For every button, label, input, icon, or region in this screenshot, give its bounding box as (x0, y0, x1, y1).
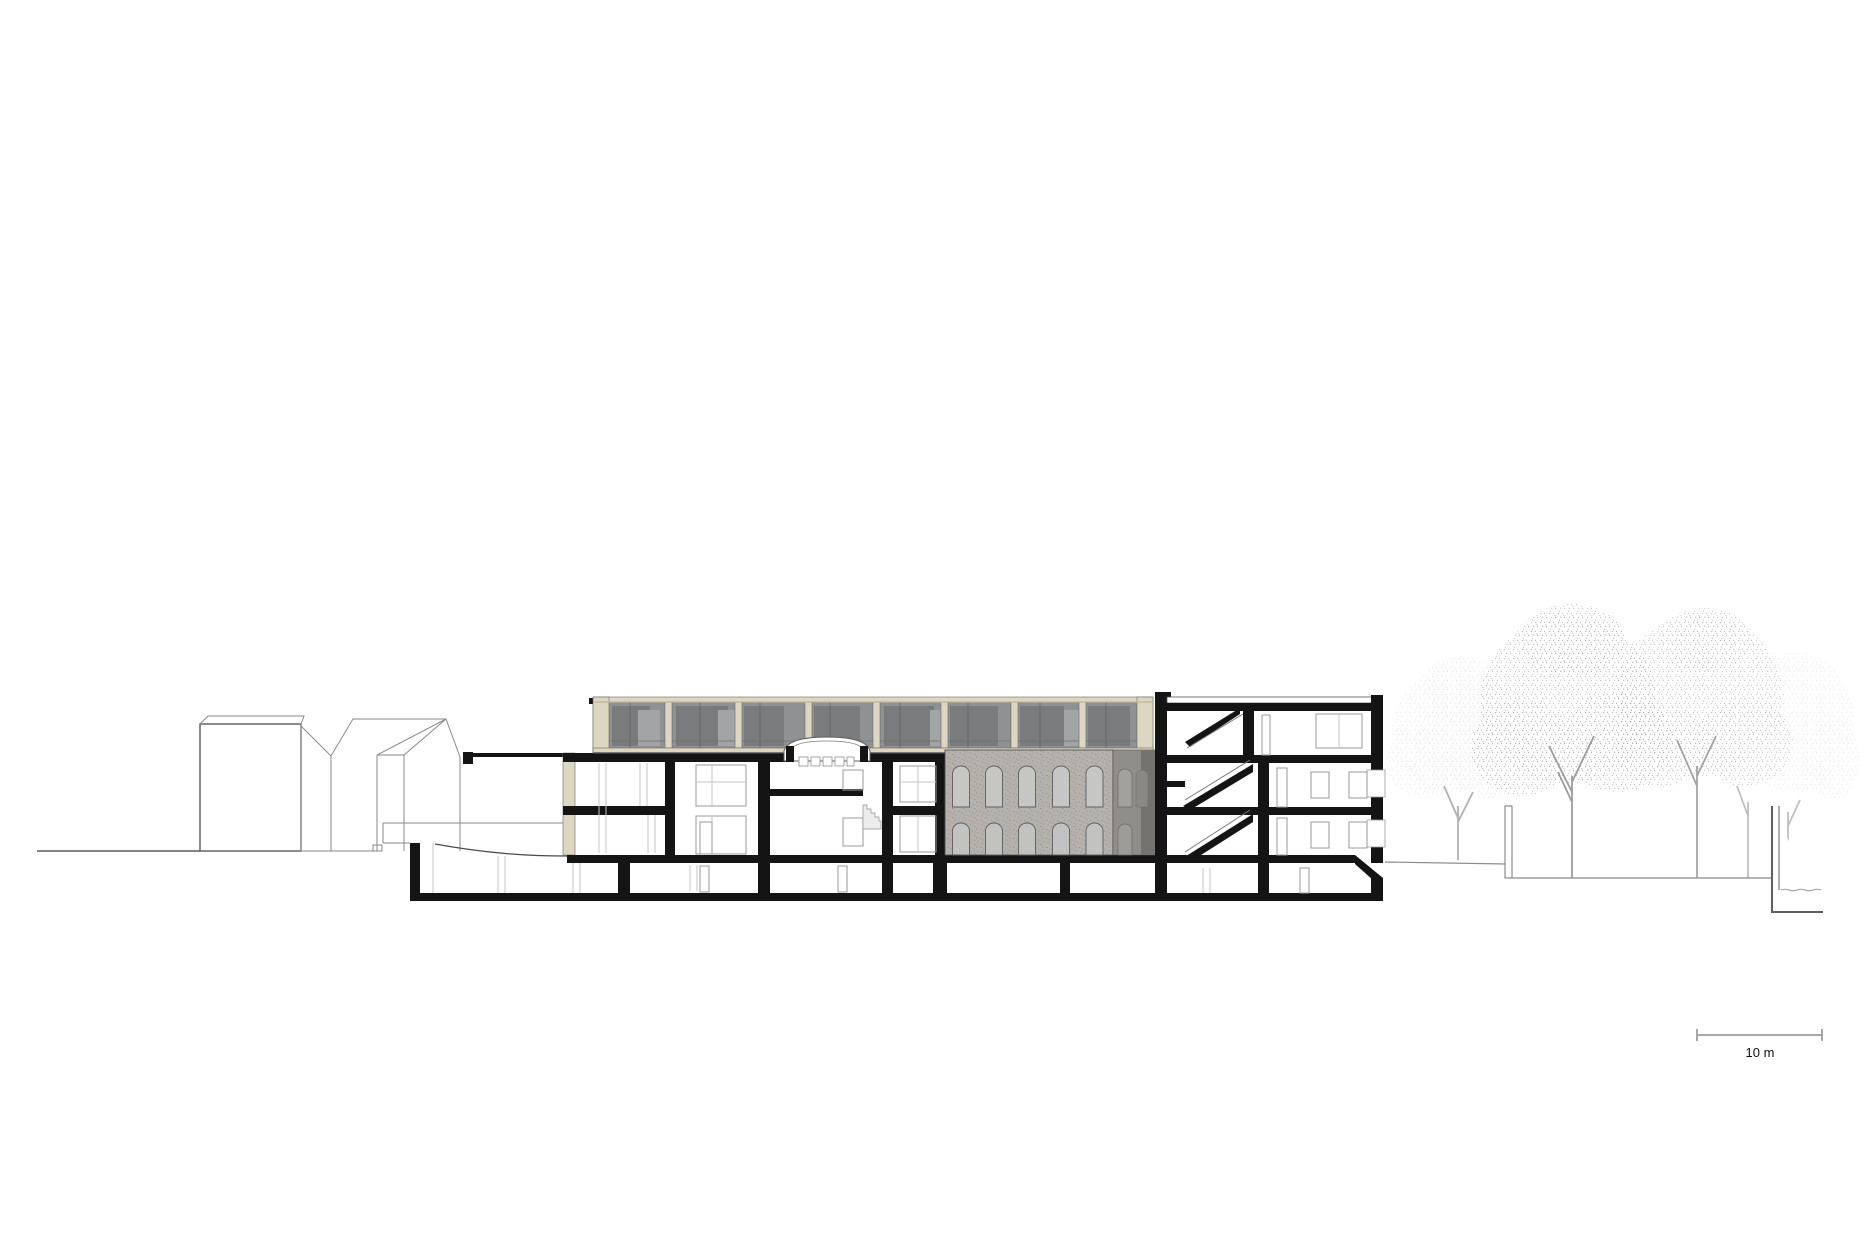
stair-flight-top (1185, 708, 1240, 747)
ground-floor-slab (567, 855, 1155, 863)
hall-stair (863, 805, 881, 829)
retaining-wall (410, 843, 420, 901)
quay-wall (1772, 806, 1823, 912)
site-right (1385, 806, 1823, 912)
roof-parapet (1167, 697, 1373, 703)
west-wall (563, 753, 575, 855)
recessed-link (1113, 750, 1155, 855)
flat-roof-top-edge (200, 716, 304, 724)
plaza-deck-lines (383, 823, 563, 843)
roof-vault (784, 737, 870, 766)
stair-flight-low (1183, 814, 1253, 862)
stair-flight-mid (1183, 764, 1253, 810)
flat-roof-building-outline (200, 724, 301, 851)
right-building-slabs-walls (1167, 708, 1371, 901)
gabled-buildings-outline (301, 719, 460, 851)
facade-window-lower (1367, 820, 1385, 847)
party-wall (1155, 703, 1167, 901)
ramp-slope-line (435, 844, 567, 856)
entrance-canopy-slab (473, 753, 565, 757)
stair-railings (1185, 714, 1250, 852)
canopy-post (463, 752, 473, 764)
right-building-windows (1203, 714, 1367, 893)
scale-bar: 10 m (1697, 1029, 1822, 1060)
garden-wall-1 (1505, 806, 1512, 878)
architectural-section-sheet: 10 m (0, 0, 1860, 1240)
right-building-section (1167, 695, 1385, 901)
trees-garden (1387, 604, 1860, 878)
roof-slab (1167, 703, 1373, 711)
terrain-upper (1385, 862, 1506, 864)
basement-bottom-slab (410, 893, 1383, 901)
plaza-and-basement-ramp (383, 823, 580, 901)
context-buildings-left (37, 716, 460, 851)
scale-bar-line (1697, 1029, 1822, 1041)
scale-bar-label: 10 m (1746, 1045, 1775, 1060)
section-drawing: 10 m (0, 0, 1860, 1240)
facade-window-upper (1367, 770, 1385, 797)
